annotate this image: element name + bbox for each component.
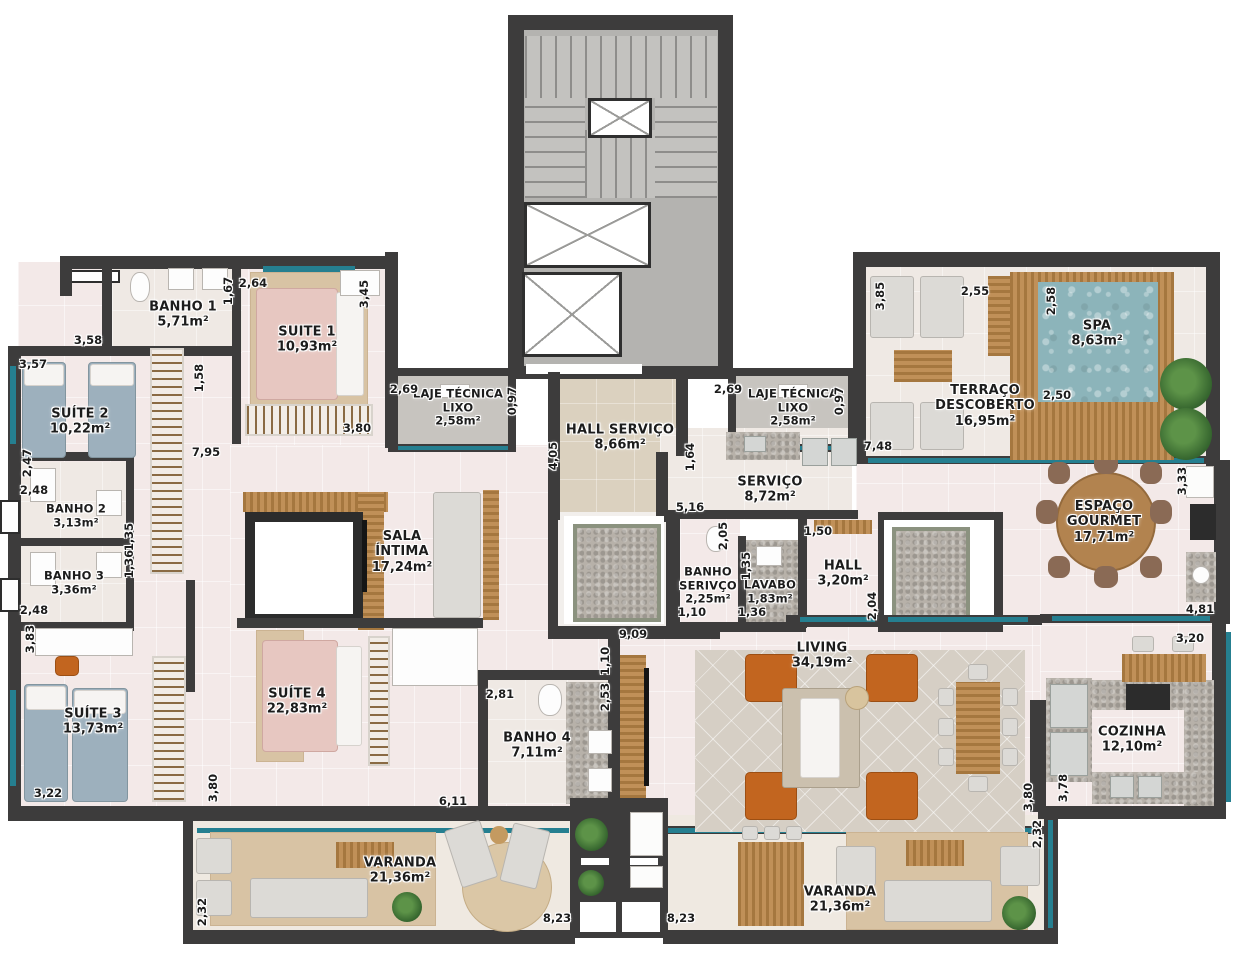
window-gourmet-living2 xyxy=(888,617,1028,622)
dim-label: 1,35 xyxy=(739,552,753,580)
desk-suite3 xyxy=(35,628,133,656)
wall xyxy=(878,512,998,520)
wall-varanda-right-bottom xyxy=(663,930,1058,944)
wall xyxy=(666,622,806,632)
window-cozinha-top xyxy=(1052,616,1210,621)
wall xyxy=(60,256,72,296)
room-label-gourmet: ESPAÇO GOURMET17,71m² xyxy=(1067,499,1141,545)
room-label-banho-servico: BANHO SERIVÇO2,25m² xyxy=(679,566,737,607)
wall-bottom-left-wing xyxy=(8,806,620,821)
room-label-servico: SERVIÇO8,72m² xyxy=(737,475,802,506)
plant-varanda-right xyxy=(1002,896,1036,930)
dim-label: 3,45 xyxy=(357,280,371,308)
wall xyxy=(8,538,133,546)
room-label-banho1: BANHO 15,71m² xyxy=(149,300,217,331)
dim-label: 2,53 xyxy=(598,683,612,711)
dim-label: 3,80 xyxy=(1021,783,1035,811)
service-elevator-car xyxy=(573,524,661,622)
dim-label: 0,97 xyxy=(832,387,846,415)
gourmet-chair xyxy=(1094,566,1118,588)
chair-varanda xyxy=(764,826,780,840)
washer-1 xyxy=(802,438,828,466)
dim-label: 1,36 xyxy=(122,550,136,578)
dim-label: 2,50 xyxy=(1043,388,1071,402)
wall-laje-left-top xyxy=(388,368,518,376)
chair-varanda xyxy=(742,826,758,840)
toilet-banho4 xyxy=(538,684,562,716)
dining-chair xyxy=(938,748,954,766)
fridge xyxy=(1050,684,1088,728)
dim-label: 1,36 xyxy=(738,605,766,619)
armchair-varanda-r2 xyxy=(1000,846,1040,886)
dim-label: 1,10 xyxy=(678,605,706,619)
stairs-mid xyxy=(585,130,655,198)
room-label-hall: HALL3,20m² xyxy=(817,559,868,590)
gourmet-chair xyxy=(1036,500,1058,524)
dim-label: 8,23 xyxy=(543,911,571,925)
window-banho3 xyxy=(0,578,20,612)
stairs-right xyxy=(655,98,717,198)
wall xyxy=(388,368,396,452)
room-label-banho3: BANHO 33,36m² xyxy=(44,569,104,596)
feature-box-void xyxy=(255,522,353,614)
wall xyxy=(8,346,232,356)
dim-label: 1,64 xyxy=(683,443,697,471)
dim-label: 1,35 xyxy=(122,523,136,551)
shaft-slot-1 xyxy=(581,858,609,865)
oven xyxy=(1050,732,1088,776)
dim-label: 7,48 xyxy=(864,439,892,453)
wall-corridor xyxy=(186,580,195,692)
room-label-terraco: TERRAÇO DESCOBERTO16,95m² xyxy=(935,383,1035,429)
dim-label: 2,69 xyxy=(714,382,742,396)
grill xyxy=(1190,504,1216,540)
sofa-living-cushions xyxy=(800,698,840,778)
gourmet-chair xyxy=(1140,556,1162,578)
room-label-spa: SPA8,63m² xyxy=(1071,319,1122,350)
gourmet-chair xyxy=(1140,462,1162,484)
dining-table xyxy=(956,682,1000,774)
dining-chair xyxy=(1002,748,1018,766)
wall-varanda-left-bottom xyxy=(183,930,575,944)
dim-label: 3,58 xyxy=(74,333,102,347)
room-label-banho2: BANHO 23,13m² xyxy=(46,502,106,529)
shaft-white-4 xyxy=(630,866,663,888)
room-label-sala-intima: SALA ÍNTIMA17,24m² xyxy=(372,529,432,575)
dim-label: 0,97 xyxy=(505,387,519,415)
stool-1 xyxy=(1132,636,1154,652)
wall-cozinha-bottom xyxy=(1038,806,1226,819)
dining-chair xyxy=(968,664,988,680)
armchair-varanda-l1 xyxy=(196,838,232,874)
room-label-living: LIVING34,19m² xyxy=(792,641,852,672)
wall xyxy=(853,252,866,464)
side-table-varanda xyxy=(490,826,508,844)
elevator-shaft-1 xyxy=(524,202,651,268)
gourmet-chair xyxy=(1150,500,1172,524)
wall-suite4-top xyxy=(237,618,483,628)
shaft-slot-2 xyxy=(630,858,658,865)
closet-suite4 xyxy=(368,636,390,766)
sofa-sala-intima xyxy=(433,492,481,618)
dim-label: 2,64 xyxy=(239,276,267,290)
sink-cozinha-1 xyxy=(1110,776,1134,798)
wardrobe-suite4 xyxy=(392,628,478,686)
shaft-small xyxy=(588,98,652,138)
dim-label: 2,48 xyxy=(20,483,48,497)
table-varanda-right xyxy=(738,842,804,926)
pillows-suite4 xyxy=(336,646,362,746)
sink-cozinha-2 xyxy=(1138,776,1162,798)
armchair-4 xyxy=(866,772,918,820)
dim-label: 1,10 xyxy=(598,647,612,675)
dim-label: 5,16 xyxy=(676,500,704,514)
wall xyxy=(102,262,112,354)
closet-suite3 xyxy=(152,656,186,802)
stairs-top xyxy=(525,36,717,98)
dim-label: 1,58 xyxy=(192,364,206,392)
plant-terraco-2 xyxy=(1160,408,1212,460)
dim-label: 2,32 xyxy=(1030,820,1044,848)
window-banho2 xyxy=(0,500,20,534)
tv-living xyxy=(644,668,649,786)
elevator-shaft-2 xyxy=(522,272,622,357)
dim-label: 2,55 xyxy=(961,284,989,298)
dim-label: 8,23 xyxy=(667,911,695,925)
room-label-suite4: SUÍTE 422,83m² xyxy=(267,687,327,718)
wall-varanda-left xyxy=(183,815,193,939)
dim-label: 3,83 xyxy=(23,625,37,653)
room-label-suite2: SUÍTE 210,22m² xyxy=(50,407,110,438)
bar-cozinha xyxy=(1122,654,1206,682)
dim-label: 4,81 xyxy=(1186,602,1214,616)
window-varanda-right xyxy=(1048,820,1053,928)
armchair-varanda-r1 xyxy=(836,846,876,886)
dim-label: 7,95 xyxy=(192,445,220,459)
wall xyxy=(994,512,1003,632)
dim-label: 6,11 xyxy=(439,794,467,808)
sink-lavabo xyxy=(756,546,782,566)
dim-label: 3,85 xyxy=(873,282,887,310)
closet-suite2 xyxy=(150,348,184,574)
dim-label: 3,80 xyxy=(343,421,371,435)
dining-chair xyxy=(938,688,954,706)
window-cozinha-right xyxy=(1226,632,1231,802)
wall-cozinha-right xyxy=(1212,620,1226,814)
window-laje-left xyxy=(398,446,508,450)
shaft-white-1 xyxy=(580,902,616,932)
dim-label: 3,20 xyxy=(1176,631,1204,645)
social-elevator-car xyxy=(892,527,970,623)
desk-chair xyxy=(55,656,79,676)
dim-label: 1,50 xyxy=(804,524,832,538)
lounger-terraco-2 xyxy=(920,276,964,338)
cooktop xyxy=(1126,684,1170,710)
dim-label: 1,67 xyxy=(221,277,235,305)
toilet-banho1 xyxy=(130,272,150,302)
dim-label: 3,78 xyxy=(1056,774,1070,802)
room-label-cozinha: COZINHA12,10m² xyxy=(1098,725,1166,756)
room-label-lavabo: LAVABO1,83m² xyxy=(744,578,796,605)
dim-label: 2,81 xyxy=(486,687,514,701)
dim-label: 2,48 xyxy=(20,603,48,617)
room-label-laje-right: LAJE TÉCNICA LIXO2,58m² xyxy=(748,388,838,429)
dim-label: 3,33 xyxy=(1175,467,1189,495)
window-banho1 xyxy=(70,270,120,283)
gourmet-chair xyxy=(1048,462,1070,484)
panel-sala-intima xyxy=(483,490,499,620)
coffee-table-varanda-right xyxy=(906,840,964,866)
dim-label: 2,69 xyxy=(390,382,418,396)
room-label-hall-servico: HALL SERVIÇO8,66m² xyxy=(566,423,674,454)
room-label-suite3: SUÍTE 313,73m² xyxy=(63,707,123,738)
gourmet-cabinet xyxy=(1186,466,1214,498)
dining-chair xyxy=(938,718,954,736)
core-vent-slot xyxy=(526,364,642,374)
gourmet-sink xyxy=(1192,566,1210,584)
dim-label: 2,05 xyxy=(716,522,730,550)
window-suite3 xyxy=(10,690,16,786)
wall xyxy=(666,512,680,638)
tv-sala-intima xyxy=(362,520,367,592)
dim-label: 9,09 xyxy=(619,627,647,641)
side-table-living xyxy=(845,686,869,710)
shaft-white-3 xyxy=(630,812,663,856)
room-label-varanda-left: VARANDA21,36m² xyxy=(364,856,436,887)
room-label-varanda-right: VARANDA21,36m² xyxy=(804,885,876,916)
wall-gourmet-right xyxy=(1214,460,1230,624)
floor-plan: BANHO 15,71m² SUITE 110,93m² SUÍTE 210,2… xyxy=(0,0,1240,954)
window-gourmet-living xyxy=(800,617,875,622)
bench-terraco xyxy=(894,350,952,382)
gourmet-chair xyxy=(1048,556,1070,578)
dim-label: 3,80 xyxy=(206,774,220,802)
tv-panel-living xyxy=(620,655,646,805)
plant-varanda-left xyxy=(392,892,422,922)
dining-chair xyxy=(1002,688,1018,706)
sofa-varanda-left xyxy=(250,878,368,918)
room-label-laje-left: LAJE TÉCNICA LIXO2,58m² xyxy=(413,388,503,429)
sink-servico xyxy=(744,436,766,452)
chair-varanda xyxy=(786,826,802,840)
dim-label: 4,05 xyxy=(546,442,560,470)
sink-banho4-2 xyxy=(588,768,612,792)
dim-label: 2,04 xyxy=(865,592,879,620)
wall xyxy=(548,512,558,638)
dining-chair xyxy=(968,776,988,792)
plant-shaft-2 xyxy=(578,870,604,896)
sink-banho4-1 xyxy=(588,730,612,754)
dim-label: 2,47 xyxy=(20,449,34,477)
washer-2 xyxy=(831,438,857,466)
room-label-suite1: SUITE 110,93m² xyxy=(277,325,337,356)
room-label-banho4: BANHO 47,11m² xyxy=(503,731,571,762)
dim-label: 2,32 xyxy=(195,898,209,926)
plant-terraco-1 xyxy=(1160,358,1212,410)
pillow-suite3-1 xyxy=(26,686,66,710)
dim-label: 3,57 xyxy=(19,357,47,371)
armchair-2 xyxy=(866,654,918,702)
dim-label: 3,22 xyxy=(34,786,62,800)
window-suite2 xyxy=(10,366,16,444)
wall-terraco-top xyxy=(853,252,1219,267)
sofa-varanda-right xyxy=(884,880,992,922)
shaft-white-2 xyxy=(622,902,660,932)
stairs-left xyxy=(525,98,585,198)
dim-label: 2,58 xyxy=(1044,287,1058,315)
wall-laje-right-top xyxy=(728,368,858,376)
pillow-suite2-2 xyxy=(90,364,134,386)
plant-shaft-1 xyxy=(575,818,608,851)
sink-banho1-1 xyxy=(168,268,194,290)
dining-chair xyxy=(1002,718,1018,736)
